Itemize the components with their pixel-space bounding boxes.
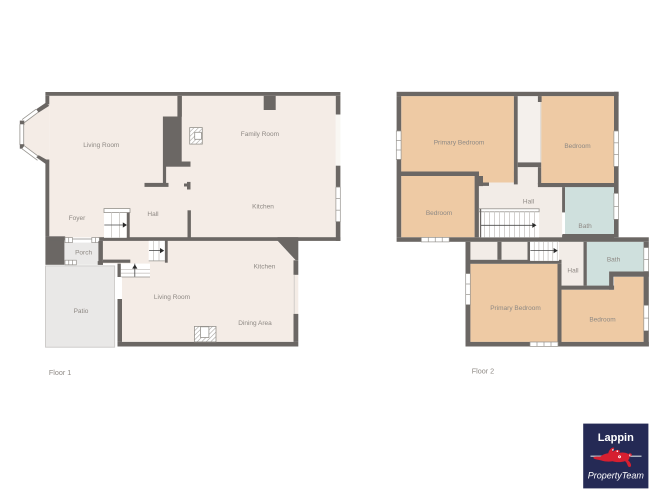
svg-text:Primary Bedroom: Primary Bedroom — [434, 140, 485, 147]
svg-text:Floor 2: Floor 2 — [472, 366, 494, 375]
svg-text:Bath: Bath — [578, 223, 592, 230]
svg-text:Family Room: Family Room — [241, 131, 279, 138]
svg-text:Bedroom: Bedroom — [426, 210, 452, 217]
svg-text:Patio: Patio — [74, 308, 89, 315]
svg-text:Living Room: Living Room — [154, 294, 190, 301]
svg-text:Living Room: Living Room — [83, 142, 119, 149]
svg-text:Hall: Hall — [567, 268, 579, 275]
svg-text:Porch: Porch — [75, 250, 92, 257]
svg-text:Bath: Bath — [607, 257, 621, 264]
svg-text:PropertyTeam: PropertyTeam — [588, 471, 645, 481]
svg-text:Kitchen: Kitchen — [252, 203, 274, 210]
svg-text:Lappin: Lappin — [598, 432, 634, 444]
svg-text:Kitchen: Kitchen — [254, 263, 276, 270]
svg-text:Bedroom: Bedroom — [564, 143, 590, 150]
svg-text:Hall: Hall — [523, 199, 535, 206]
svg-text:Floor 1: Floor 1 — [49, 368, 71, 377]
svg-text:Hall: Hall — [147, 211, 159, 218]
svg-text:Bedroom: Bedroom — [589, 317, 615, 324]
svg-text:Dining Area: Dining Area — [238, 320, 272, 327]
svg-text:Primary Bedroom: Primary Bedroom — [490, 305, 541, 312]
svg-text:Foyer: Foyer — [69, 215, 86, 222]
